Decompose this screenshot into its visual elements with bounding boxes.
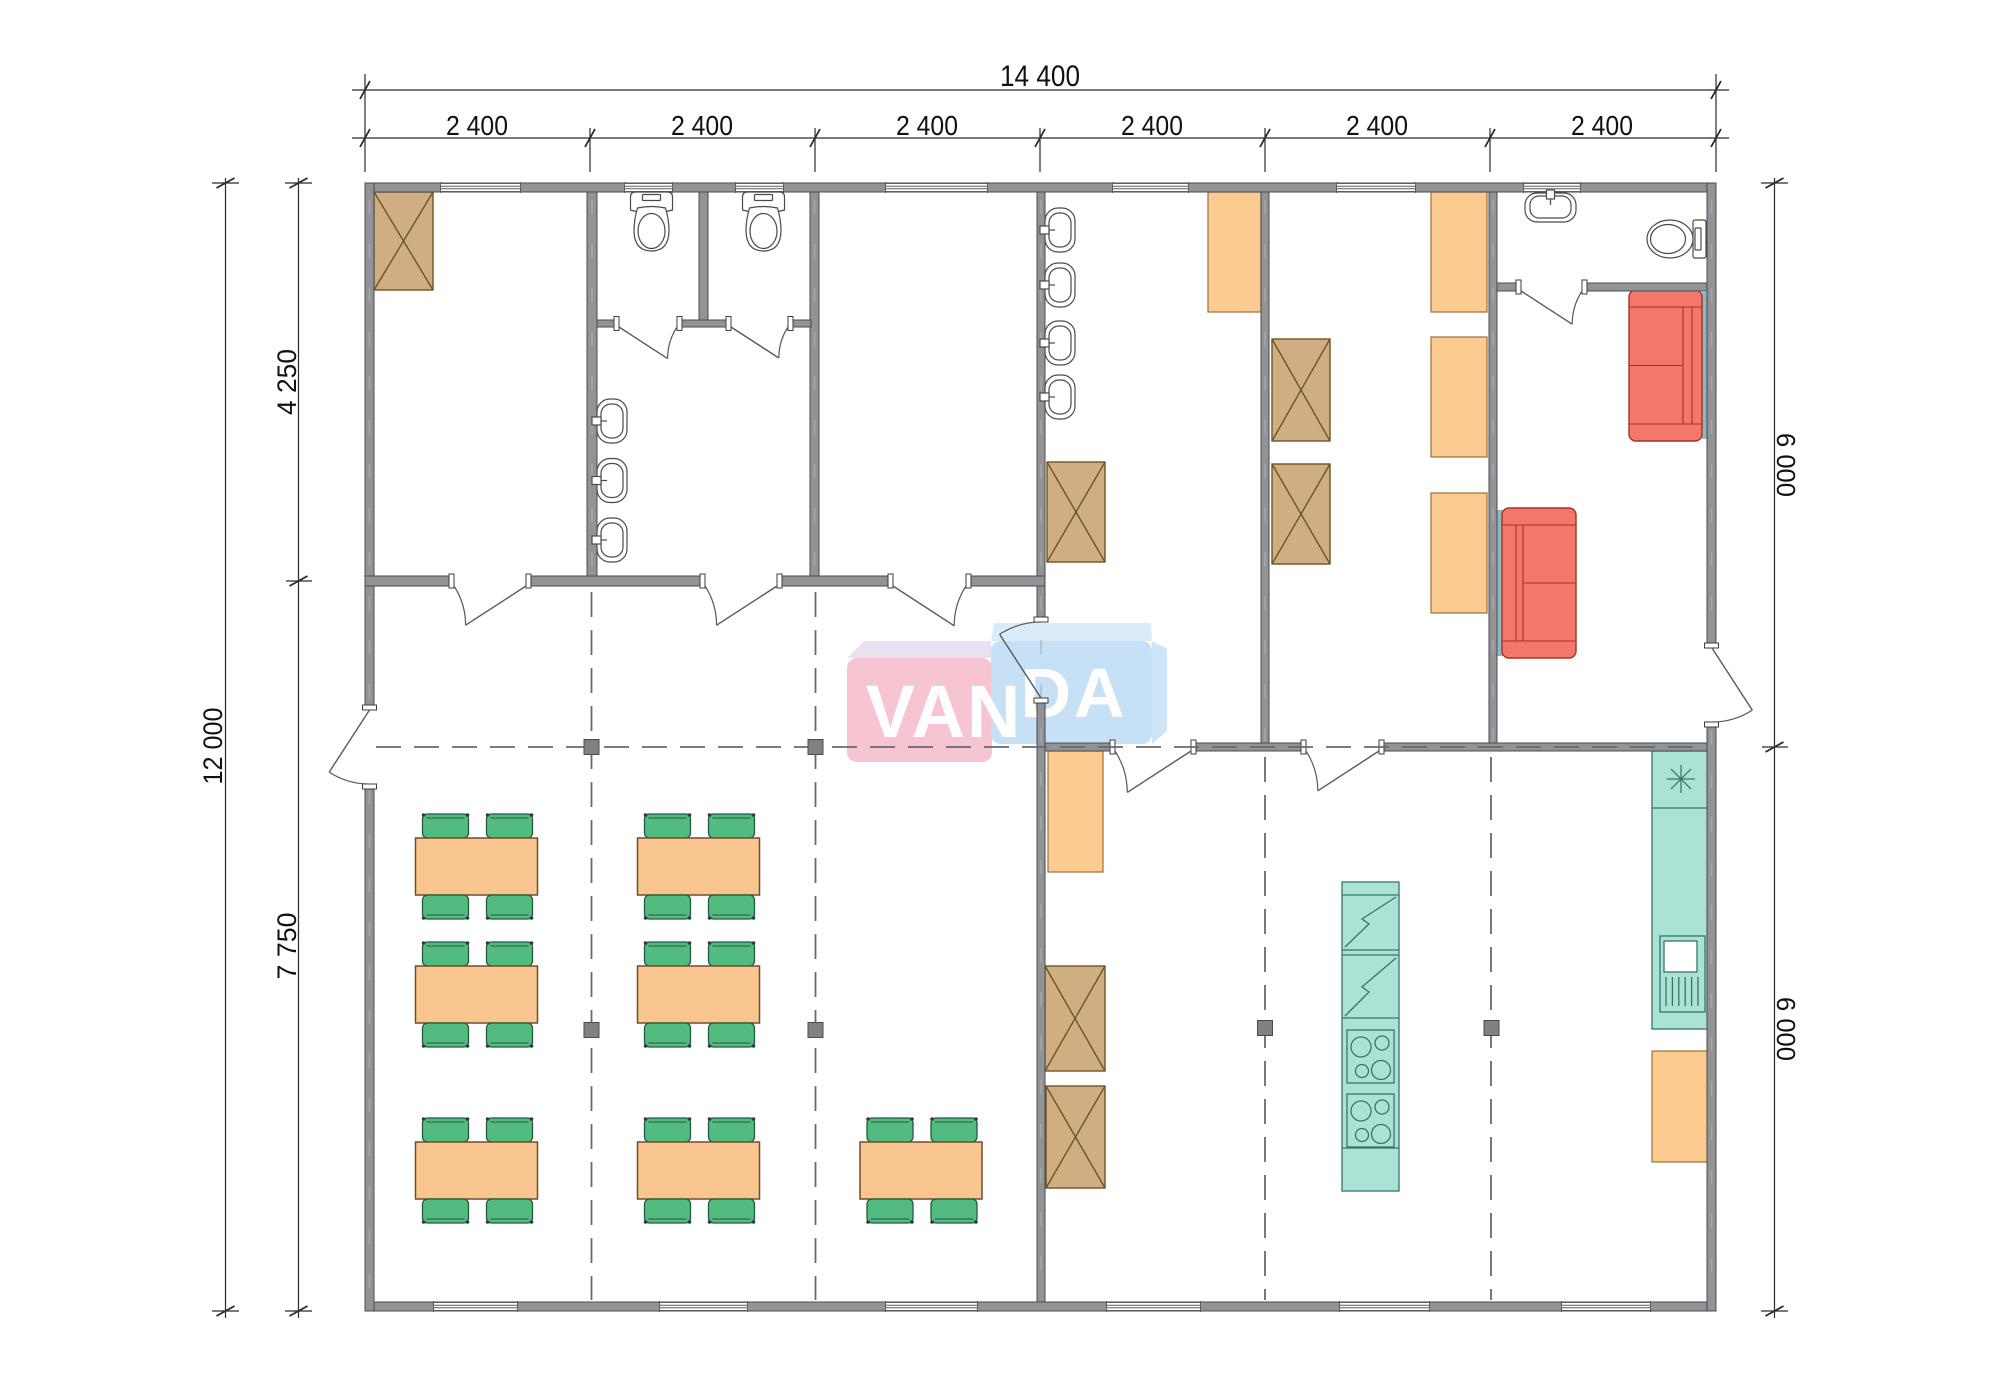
svg-text:6 000: 6 000 xyxy=(1771,433,1801,497)
svg-text:12 000: 12 000 xyxy=(198,708,228,785)
svg-text:2 400: 2 400 xyxy=(671,110,733,141)
svg-text:2 400: 2 400 xyxy=(446,110,508,141)
svg-text:VAN: VAN xyxy=(866,670,1023,753)
svg-text:2 400: 2 400 xyxy=(1346,110,1408,141)
svg-text:6 000: 6 000 xyxy=(1771,997,1801,1061)
svg-text:4 250: 4 250 xyxy=(272,349,302,415)
svg-text:2 400: 2 400 xyxy=(1121,110,1183,141)
svg-text:2 400: 2 400 xyxy=(1571,110,1633,141)
svg-text:2 400: 2 400 xyxy=(896,110,958,141)
svg-text:7 750: 7 750 xyxy=(272,913,302,980)
svg-text:14 400: 14 400 xyxy=(1000,60,1080,93)
